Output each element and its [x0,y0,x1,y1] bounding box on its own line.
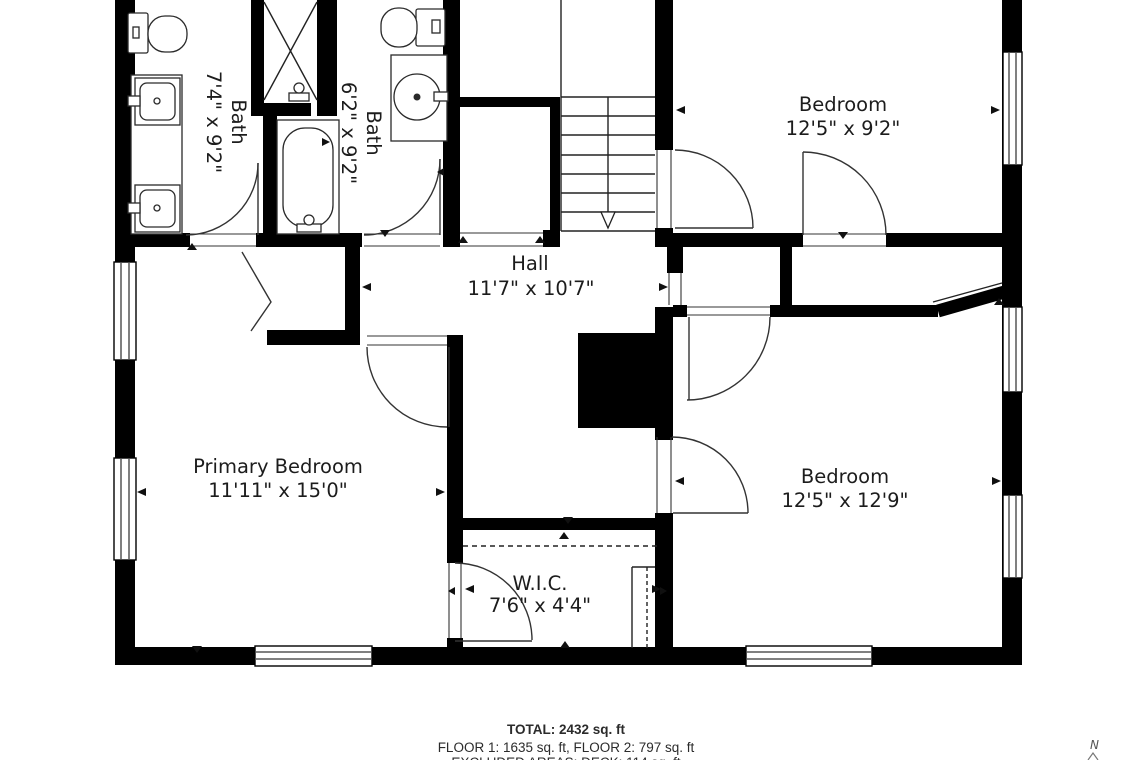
room-label-bedroom2-name: Bedroom [801,465,889,488]
bedroom2-top-wall-left [673,305,687,317]
bedroom2-top-wall-right [770,305,938,317]
stairwell-wall-lower [655,228,673,247]
shower-wall-right [317,0,337,116]
floorplan-canvas: Bath 7'4" x 9'2" Bath 6'2" x 9'2" Bedroo… [0,0,1140,760]
footer-floors: FLOOR 1: 1635 sq. ft, FLOOR 2: 797 sq. f… [438,740,695,755]
north-arrow-icon [1088,753,1098,760]
alcove-wall-stub [667,247,683,273]
room-label-bath1-name: Bath [227,99,250,144]
spine-wall-1 [115,233,190,247]
window-right-1 [1003,52,1022,165]
door-bath2 [364,159,440,235]
spine-wall-3 [673,233,803,247]
door-bedroom2-hall [672,437,748,513]
north-label: N [1090,738,1099,752]
footer-total: TOTAL: 2432 sq. ft [507,722,626,737]
closet-folding-door [242,252,271,331]
room-label-bedroom2-dims: 12'5" x 12'9" [781,489,908,512]
room-label-wic-dims: 7'6" x 4'4" [489,594,591,617]
door-bedroom1-stair [675,150,753,228]
shower-icon [264,2,317,101]
window-right-3 [1003,495,1022,578]
room-label-bedroom1-name: Bedroom [799,93,887,116]
room-label-hall-name: Hall [511,252,548,275]
window-bottom-2 [746,646,872,666]
room-label-bath1-dims: 7'4" x 9'2" [202,71,225,173]
toilet-icon-bath1 [128,13,187,53]
window-left-1 [114,262,136,360]
room-label-hall-dims: 11'7" x 10'7" [467,277,594,300]
room-label-bath2-dims: 6'2" x 9'2" [337,82,360,184]
stair-closet-stub-left [447,230,460,247]
stair-closet-top [447,97,560,107]
door-bedroom2-alcove [687,317,770,400]
door-primary-bedroom [367,347,449,427]
shower-wall-bottom-b [328,103,337,116]
toilet-icon-bath2 [381,8,445,47]
footer-excluded: EXCLUDED AREAS: DECK: 114 sq. ft [451,755,681,760]
shower-wall-bottom-a [251,103,311,116]
chimney-block [578,333,668,428]
window-right-2 [1003,307,1022,392]
primary-wic-wall-stub [447,638,463,647]
stair-closet-right [550,97,560,240]
door-bedroom1-hall [803,152,886,235]
wic-top-wall [447,518,673,530]
shower-wall-left [251,0,264,116]
compass: N [1088,738,1099,760]
double-vanity-icon [128,75,182,234]
room-label-bath2-name: Bath [362,110,385,155]
room-label-primary-name: Primary Bedroom [193,455,363,478]
spine-wall-2 [256,233,362,247]
door-bath1 [186,163,258,235]
sink-vanity-icon [391,55,448,141]
outer-wall-bottom [115,647,1022,665]
bathtub-icon [277,120,339,234]
room-label-primary-dims: 11'11" x 15'0" [208,479,347,502]
stairwell-wall-upper [655,0,673,150]
alcove-wall-right [780,247,792,315]
bath-divider-wall [263,103,277,247]
room-label-bedroom1-dims: 12'5" x 9'2" [786,117,901,140]
window-bottom-1 [255,646,372,666]
room-label-wic-name: W.I.C. [512,572,567,595]
window-left-2 [114,458,136,560]
closet-wall-bottom [267,330,360,345]
spine-wall-4 [886,233,1022,247]
stairs-down-arrow [601,212,615,228]
stair-closet-stub-right [543,230,560,247]
bedroom2-left-wall-lower [655,513,673,647]
floorplan-page: Bath 7'4" x 9'2" Bath 6'2" x 9'2" Bedroo… [0,0,1140,760]
footer-stats: TOTAL: 2432 sq. ft FLOOR 1: 1635 sq. ft,… [438,722,695,760]
staircase [561,0,655,231]
